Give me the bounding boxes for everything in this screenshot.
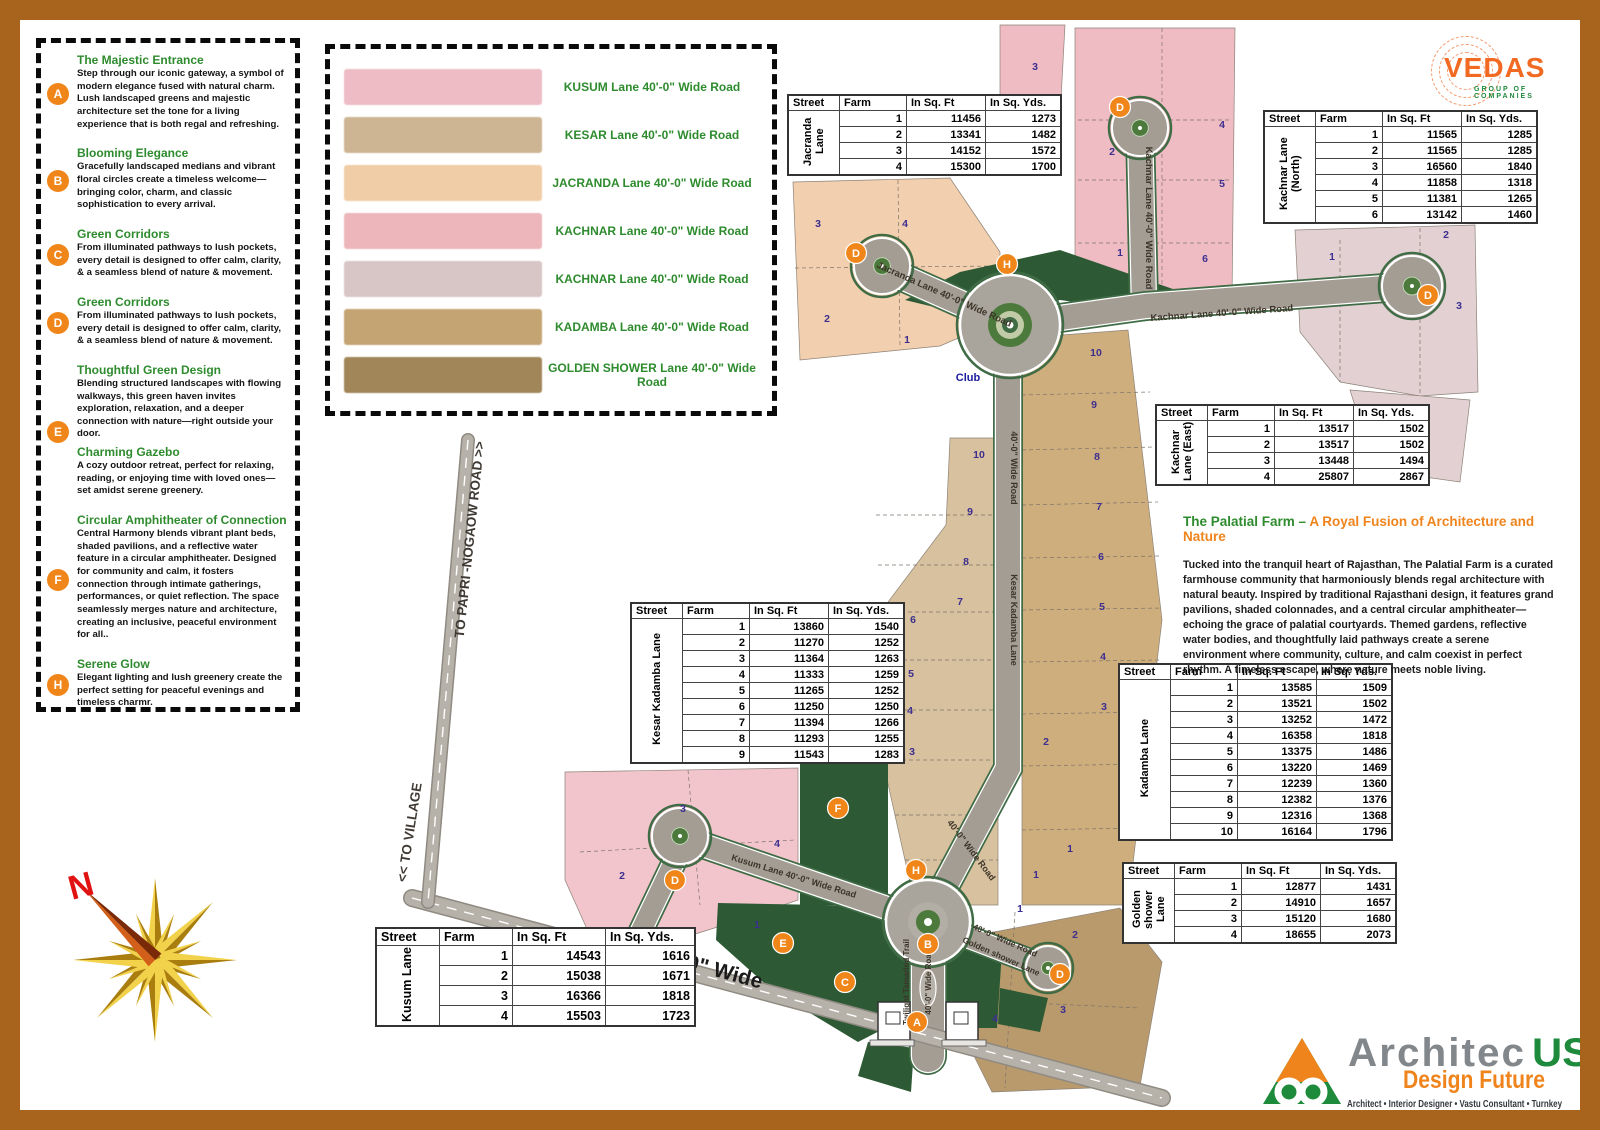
- legend-blocks: Serene GlowElegant lighting and lush gre…: [77, 657, 287, 714]
- map-label: Kachnar Lane 40'-0" Wide Road: [1143, 147, 1154, 290]
- street-name: Jacranda Lane: [788, 111, 840, 176]
- plot-area: [1295, 225, 1478, 396]
- table-cell: 15300: [907, 159, 986, 176]
- table-cell: 11333: [750, 667, 829, 683]
- road-legend-row: KESAR Lane 40'-0" Wide Road: [344, 111, 762, 159]
- table-cell: 1: [1316, 127, 1383, 143]
- legend-text: Step through our iconic gateway, a symbo…: [77, 68, 287, 131]
- table-cell: 15503: [513, 1006, 606, 1027]
- table-cell: 13375: [1238, 744, 1317, 760]
- legend-badge-E: E: [47, 421, 69, 443]
- table-cell: 1259: [829, 667, 905, 683]
- legend-title: The Majestic Entrance: [77, 53, 287, 67]
- column-header: Street: [631, 603, 683, 619]
- svg-text:H: H: [1003, 259, 1011, 271]
- table-cell: 16164: [1238, 824, 1317, 841]
- farm-table: StreetFarmIn Sq. FtIn Sq. Yds.Jacranda L…: [787, 94, 1062, 176]
- table-cell: 4: [1208, 469, 1275, 486]
- table-cell: 1700: [986, 159, 1062, 176]
- table-cell: 3: [683, 651, 750, 667]
- legend-item-A: AThe Majestic EntranceStep through our i…: [47, 53, 287, 135]
- table-cell: 3: [440, 986, 513, 1006]
- table-cell: 18655: [1242, 927, 1321, 944]
- plot-number: 6: [910, 614, 916, 626]
- table-cell: 1472: [1317, 712, 1393, 728]
- table-cell: 1616: [606, 946, 696, 966]
- table-cell: 11858: [1383, 175, 1462, 191]
- legend-text: Elegant lighting and lush greenery creat…: [77, 672, 287, 710]
- table-cell: 13220: [1238, 760, 1317, 776]
- table-cell: 14152: [907, 143, 986, 159]
- table-cell: 1572: [986, 143, 1062, 159]
- column-header: Street: [1123, 863, 1175, 879]
- farm-table: StreetFarmIn Sq. FtIn Sq. Yds.Kadamba La…: [1118, 663, 1393, 841]
- column-header: Street: [1119, 664, 1171, 680]
- legend-blocks: Thoughtful Green DesignBlending structur…: [77, 363, 287, 502]
- column-header: Street: [1156, 405, 1208, 421]
- table-cell: 1460: [1462, 207, 1538, 224]
- column-header: Farm: [683, 603, 750, 619]
- road-legend-label: GOLDEN SHOWER Lane 40'-0" Wide Road: [542, 361, 762, 389]
- table-cell: 13142: [1383, 207, 1462, 224]
- table-cell: 6: [1316, 207, 1383, 224]
- table-cell: 5: [1171, 744, 1238, 760]
- legend-blocks: The Majestic EntranceStep through our ic…: [77, 53, 287, 135]
- table-cell: 5: [683, 683, 750, 699]
- table-cell: 1318: [1462, 175, 1538, 191]
- column-header: In Sq. Ft: [907, 95, 986, 111]
- map-marker-H: H: [997, 254, 1018, 275]
- legend-text: A cozy outdoor retreat, perfect for rela…: [77, 460, 287, 498]
- table-cell: 1818: [1317, 728, 1393, 744]
- legend-item-D: DGreen CorridorsFrom illuminated pathway…: [47, 295, 287, 352]
- table-cell: 11293: [750, 731, 829, 747]
- map-marker-B: B: [918, 934, 939, 955]
- legend-title: Blooming Elegance: [77, 146, 287, 160]
- column-header: In Sq. Ft: [1242, 863, 1321, 879]
- plot-number: 3: [1060, 1004, 1066, 1016]
- plot-number: 9: [967, 506, 973, 518]
- plot-number: 3: [1101, 701, 1107, 713]
- legend-text: Blending structured landscapes with flow…: [77, 378, 287, 441]
- legend-blocks: Green CorridorsFrom illuminated pathways…: [77, 227, 287, 284]
- table-cell: 13517: [1275, 421, 1354, 437]
- farm-table-kesar-kadamba: StreetFarmIn Sq. FtIn Sq. Yds.Kesar Kada…: [630, 602, 905, 764]
- table-cell: 1680: [1321, 911, 1397, 927]
- table-cell: 11565: [1383, 127, 1462, 143]
- table-cell: 11364: [750, 651, 829, 667]
- svg-text:C: C: [841, 977, 849, 989]
- table-cell: 25807: [1275, 469, 1354, 486]
- table-cell: 15120: [1242, 911, 1321, 927]
- legend-text: From illuminated pathways to lush pocket…: [77, 310, 287, 348]
- svg-text:D: D: [1056, 969, 1064, 981]
- table-cell: 12877: [1242, 879, 1321, 895]
- table-cell: 1360: [1317, 776, 1393, 792]
- legend-item-C: CGreen CorridorsFrom illuminated pathway…: [47, 227, 287, 284]
- legend-badge-D: D: [47, 312, 69, 334]
- road-legend-label: JACRANDA Lane 40'-0" Wide Road: [542, 176, 762, 190]
- svg-text:A: A: [913, 1017, 921, 1029]
- table-cell: 1265: [1462, 191, 1538, 207]
- table-cell: 1723: [606, 1006, 696, 1027]
- map-marker-H: H: [906, 860, 927, 881]
- table-cell: 1: [840, 111, 907, 127]
- legend-badge-F: F: [47, 569, 69, 591]
- farm-table-kadamba: StreetFarmIn Sq. FtIn Sq. Yds.Kadamba La…: [1118, 663, 1393, 841]
- table-cell: 1540: [829, 619, 905, 635]
- column-header: Farm: [1175, 863, 1242, 879]
- table-cell: 13252: [1238, 712, 1317, 728]
- plot-number: 2: [619, 870, 625, 882]
- map-marker-D: D: [1050, 964, 1071, 985]
- vedas-subtitle: GROUP OF COMPANIES: [1474, 86, 1578, 100]
- road-legend-row: KACHNAR Lane 40'-0" Wide Road: [344, 207, 762, 255]
- table-cell: 2: [1171, 696, 1238, 712]
- legend-item-H: HSerene GlowElegant lighting and lush gr…: [47, 657, 287, 714]
- compass-north-label: N: [64, 865, 98, 908]
- table-cell: 3: [1171, 712, 1238, 728]
- plot-number: 2: [1109, 146, 1115, 158]
- column-header: In Sq. Yds.: [1321, 863, 1397, 879]
- table-cell: 1285: [1462, 127, 1538, 143]
- map-marker-D: D: [665, 870, 686, 891]
- table-cell: 15038: [513, 966, 606, 986]
- column-header: Farm: [840, 95, 907, 111]
- road-legend-row: KUSUM Lane 40'-0" Wide Road: [344, 63, 762, 111]
- map-label: 40'-0" Wide Road: [1009, 431, 1019, 504]
- table-cell: 11394: [750, 715, 829, 731]
- table-cell: 4: [1175, 927, 1242, 944]
- legend-title: Green Corridors: [77, 227, 287, 241]
- table-cell: 2867: [1354, 469, 1430, 486]
- plot-number: 8: [963, 556, 969, 568]
- table-cell: 8: [683, 731, 750, 747]
- map-marker-D: D: [1418, 285, 1439, 306]
- road-color-swatch: [344, 213, 542, 249]
- table-cell: 1502: [1354, 437, 1430, 453]
- svg-text:D: D: [1116, 102, 1124, 114]
- plot-number: 7: [1096, 501, 1102, 513]
- svg-text:D: D: [671, 875, 679, 887]
- plot-number: 1: [1033, 869, 1039, 881]
- legend-title: Charming Gazebo: [77, 445, 287, 459]
- plot-number: 5: [908, 668, 914, 680]
- table-cell: 11381: [1383, 191, 1462, 207]
- road-legend-label: KUSUM Lane 40'-0" Wide Road: [542, 80, 762, 94]
- road-legend-label: KACHNAR Lane 40'-0" Wide Road: [542, 224, 762, 238]
- plot-number: 2: [824, 313, 830, 325]
- table-cell: 10: [1171, 824, 1238, 841]
- road-color-swatch: [344, 261, 542, 297]
- column-header: In Sq. Ft: [1383, 111, 1462, 127]
- legend-text: Gracefully landscaped medians and vibran…: [77, 161, 287, 212]
- plot-number: 6: [1202, 253, 1208, 265]
- legend-blocks: Green CorridorsFrom illuminated pathways…: [77, 295, 287, 352]
- table-cell: 2: [440, 966, 513, 986]
- svg-text:E: E: [779, 938, 786, 950]
- map-label: << TO VILLAGE: [394, 782, 425, 883]
- road-color-swatch: [344, 165, 542, 201]
- table-cell: 13521: [1238, 696, 1317, 712]
- table-cell: 12239: [1238, 776, 1317, 792]
- map-marker-F: F: [828, 798, 849, 819]
- palatial-title-green: The Palatial Farm –: [1183, 514, 1309, 529]
- vedas-logo: VEDAS GROUP OF COMPANIES: [1418, 26, 1578, 118]
- column-header: Street: [376, 928, 440, 946]
- architec-tagline: Design Future: [1403, 1066, 1545, 1094]
- street-name: Kesar Kadamba Lane: [631, 619, 683, 764]
- svg-text:H: H: [912, 865, 920, 877]
- road-color-swatch: [344, 357, 542, 393]
- farm-table-golden-shower: StreetFarmIn Sq. FtIn Sq. Yds.Golden sho…: [1122, 862, 1397, 944]
- table-cell: 16358: [1238, 728, 1317, 744]
- plot-number: 2: [1443, 229, 1449, 241]
- road-color-swatch: [344, 69, 542, 105]
- farm-table: StreetFarmIn Sq. FtIn Sq. Yds.Kusum Lane…: [375, 927, 696, 1027]
- plot-number: 4: [992, 1013, 998, 1025]
- column-header: In Sq. Ft: [1275, 405, 1354, 421]
- table-cell: 11565: [1383, 143, 1462, 159]
- road-legend-label: KACHNAR Lane 40'-0" Wide Road: [542, 272, 762, 286]
- map-marker-D: D: [846, 243, 867, 264]
- plot-number: 6: [1098, 551, 1104, 563]
- table-cell: 1657: [1321, 895, 1397, 911]
- svg-text:D: D: [852, 248, 860, 260]
- table-cell: 2073: [1321, 927, 1397, 944]
- table-cell: 7: [1171, 776, 1238, 792]
- column-header: In Sq. Yds.: [829, 603, 905, 619]
- table-cell: 2: [1316, 143, 1383, 159]
- legend-title: Thoughtful Green Design: [77, 363, 287, 377]
- table-cell: 11250: [750, 699, 829, 715]
- road-color-swatch: [344, 309, 542, 345]
- road-legend-row: KADAMBA Lane 40'-0" Wide Road: [344, 303, 762, 351]
- table-cell: 1671: [606, 966, 696, 986]
- table-cell: 1818: [606, 986, 696, 1006]
- table-cell: 5: [1316, 191, 1383, 207]
- map-marker-A: A: [907, 1012, 928, 1033]
- vedas-name: VEDAS: [1444, 52, 1545, 84]
- table-cell: 6: [683, 699, 750, 715]
- table-cell: 12382: [1238, 792, 1317, 808]
- column-header: In Sq. Yds.: [1354, 405, 1430, 421]
- table-cell: 11456: [907, 111, 986, 127]
- plot-number: 1: [1329, 251, 1335, 263]
- table-cell: 1283: [829, 747, 905, 764]
- column-header: Farm: [440, 928, 513, 946]
- table-cell: 4: [840, 159, 907, 176]
- farm-table-kachnar-north: StreetFarmIn Sq. FtIn Sq. Yds.Kachnar La…: [1263, 110, 1538, 224]
- table-cell: 1266: [829, 715, 905, 731]
- legend-box: AThe Majestic EntranceStep through our i…: [36, 38, 300, 712]
- table-cell: 1368: [1317, 808, 1393, 824]
- map-label: Club: [956, 372, 981, 384]
- plot-number: 3: [1456, 300, 1462, 312]
- column-header: In Sq. Ft: [513, 928, 606, 946]
- table-cell: 6: [1171, 760, 1238, 776]
- legend-badge-H: H: [47, 674, 69, 696]
- table-cell: 11543: [750, 747, 829, 764]
- architec-logo: Architec US Design Future Architect • In…: [1243, 1004, 1595, 1116]
- plot-number: 5: [1099, 601, 1105, 613]
- plot-number: 9: [1091, 399, 1097, 411]
- table-cell: 1: [683, 619, 750, 635]
- table-cell: 13448: [1275, 453, 1354, 469]
- table-cell: 4: [440, 1006, 513, 1027]
- plot-number: 7: [957, 596, 963, 608]
- legend-blocks: Circular Amphitheater of ConnectionCentr…: [77, 513, 287, 646]
- plot-number: 4: [1100, 651, 1106, 663]
- legend-badge-C: C: [47, 244, 69, 266]
- table-cell: 4: [683, 667, 750, 683]
- map-label: Twilight Tamarind Trail: [902, 939, 911, 1025]
- farm-table: StreetFarmIn Sq. FtIn Sq. Yds.Golden sho…: [1122, 862, 1397, 944]
- plot-number: 1: [1117, 247, 1123, 259]
- column-header: Farm: [1208, 405, 1275, 421]
- legend-badge-B: B: [47, 170, 69, 192]
- table-cell: 13517: [1275, 437, 1354, 453]
- table-cell: 2: [1208, 437, 1275, 453]
- plot-number: 4: [902, 218, 908, 230]
- svg-text:D: D: [1424, 290, 1432, 302]
- street-name: Golden shower Lane: [1123, 879, 1175, 944]
- farm-table: StreetFarmIn Sq. FtIn Sq. Yds.Kachnar La…: [1155, 404, 1430, 486]
- palatial-description: The Palatial Farm – A Royal Fusion of Ar…: [1183, 514, 1555, 678]
- table-cell: 1273: [986, 111, 1062, 127]
- map-marker-E: E: [773, 933, 794, 954]
- plot-number: 4: [907, 705, 913, 717]
- plot-number: 3: [815, 218, 821, 230]
- legend-title: Circular Amphitheater of Connection: [77, 513, 287, 527]
- plot-number: 1: [754, 919, 760, 931]
- legend-item-F: FCircular Amphitheater of ConnectionCent…: [47, 513, 287, 646]
- table-cell: 1431: [1321, 879, 1397, 895]
- table-cell: 9: [683, 747, 750, 764]
- column-header: Farm: [1316, 111, 1383, 127]
- architec-services: Architect • Interior Designer • Vastu Co…: [1347, 1098, 1562, 1110]
- plot-number: 1: [1017, 903, 1023, 915]
- road-legend-box: KUSUM Lane 40'-0" Wide RoadKESAR Lane 40…: [325, 44, 777, 416]
- table-cell: 14543: [513, 946, 606, 966]
- table-cell: 11270: [750, 635, 829, 651]
- plot-number: 3: [1032, 61, 1038, 73]
- table-cell: 3: [1208, 453, 1275, 469]
- column-header: Street: [1264, 111, 1316, 127]
- legend-title: Green Corridors: [77, 295, 287, 309]
- map-label: Kesar Kadamba Lane: [1009, 574, 1019, 666]
- compass-rose: N: [64, 865, 237, 1042]
- green-park: [858, 1042, 914, 1092]
- column-header: In Sq. Yds.: [606, 928, 696, 946]
- table-cell: 1: [1171, 680, 1238, 696]
- column-header: In Sq. Yds.: [986, 95, 1062, 111]
- map-marker-C: C: [835, 972, 856, 993]
- plot-number: 1: [1067, 843, 1073, 855]
- street-name: Kadamba Lane: [1119, 680, 1171, 841]
- svg-text:B: B: [924, 939, 932, 951]
- plot-number: 10: [973, 449, 985, 461]
- plot-number: 8: [1094, 451, 1100, 463]
- plot-number: 10: [1090, 347, 1102, 359]
- plot-number: 2: [1043, 736, 1049, 748]
- table-cell: 4: [1316, 175, 1383, 191]
- farm-table-jacranda: StreetFarmIn Sq. FtIn Sq. Yds.Jacranda L…: [787, 94, 1062, 176]
- legend-item-E: EThoughtful Green DesignBlending structu…: [47, 363, 287, 502]
- table-cell: 1: [1175, 879, 1242, 895]
- table-cell: 16560: [1383, 159, 1462, 175]
- table-cell: 13341: [907, 127, 986, 143]
- table-cell: 1502: [1354, 421, 1430, 437]
- palatial-body: Tucked into the tranquil heart of Rajast…: [1183, 558, 1555, 678]
- table-cell: 3: [1175, 911, 1242, 927]
- table-cell: 1: [1208, 421, 1275, 437]
- plot-number: 1: [904, 334, 910, 346]
- farm-table: StreetFarmIn Sq. FtIn Sq. Yds.Kachnar La…: [1263, 110, 1538, 224]
- table-cell: 1509: [1317, 680, 1393, 696]
- site-plan-page: Jacranda Lane 40'-0" Wide RoadKachnar La…: [0, 0, 1600, 1130]
- legend-item-B: BBlooming EleganceGracefully landscaped …: [47, 146, 287, 216]
- road-legend-row: JACRANDA Lane 40'-0" Wide Road: [344, 159, 762, 207]
- map-label: 40'-0" Wide Road: [924, 949, 933, 1014]
- road-legend-label: KESAR Lane 40'-0" Wide Road: [542, 128, 762, 142]
- legend-title: Serene Glow: [77, 657, 287, 671]
- table-cell: 1796: [1317, 824, 1393, 841]
- plot-number: 5: [1219, 178, 1225, 190]
- column-header: In Sq. Yds.: [1462, 111, 1538, 127]
- plot-number: 3: [680, 803, 686, 815]
- table-cell: 1252: [829, 683, 905, 699]
- table-cell: 11265: [750, 683, 829, 699]
- table-cell: 1285: [1462, 143, 1538, 159]
- table-cell: 2: [683, 635, 750, 651]
- farm-table-kachnar-east: StreetFarmIn Sq. FtIn Sq. Yds.Kachnar La…: [1155, 404, 1430, 486]
- table-cell: 16366: [513, 986, 606, 1006]
- farm-table-kusum: StreetFarmIn Sq. FtIn Sq. Yds.Kusum Lane…: [375, 927, 696, 1027]
- table-cell: 1840: [1462, 159, 1538, 175]
- table-cell: 1469: [1317, 760, 1393, 776]
- road-papri-road: [428, 440, 468, 902]
- table-cell: 14910: [1242, 895, 1321, 911]
- table-cell: 1494: [1354, 453, 1430, 469]
- legend-blocks: Blooming EleganceGracefully landscaped m…: [77, 146, 287, 216]
- farm-table: StreetFarmIn Sq. FtIn Sq. Yds.Kesar Kada…: [630, 602, 905, 764]
- road-bulb: [1379, 253, 1445, 319]
- road-color-swatch: [344, 117, 542, 153]
- table-cell: 1: [440, 946, 513, 966]
- table-cell: 1482: [986, 127, 1062, 143]
- street-name: Kachnar Lane (East): [1156, 421, 1208, 486]
- road-legend-label: KADAMBA Lane 40'-0" Wide Road: [542, 320, 762, 334]
- table-cell: 1255: [829, 731, 905, 747]
- plot-number: 4: [1219, 119, 1225, 131]
- table-cell: 1252: [829, 635, 905, 651]
- column-header: In Sq. Ft: [750, 603, 829, 619]
- architec-triangle-orange: [1276, 1038, 1328, 1082]
- table-cell: 12316: [1238, 808, 1317, 824]
- legend-text: From illuminated pathways to lush pocket…: [77, 242, 287, 280]
- map-marker-D: D: [1110, 97, 1131, 118]
- palatial-title: The Palatial Farm – A Royal Fusion of Ar…: [1183, 514, 1555, 544]
- table-cell: 2: [840, 127, 907, 143]
- street-name: Kachnar Lane (North): [1264, 127, 1316, 224]
- plot-number: 3: [909, 746, 915, 758]
- table-cell: 1263: [829, 651, 905, 667]
- table-cell: 4: [1171, 728, 1238, 744]
- table-cell: 1376: [1317, 792, 1393, 808]
- table-cell: 13860: [750, 619, 829, 635]
- legend-badge-A: A: [47, 83, 69, 105]
